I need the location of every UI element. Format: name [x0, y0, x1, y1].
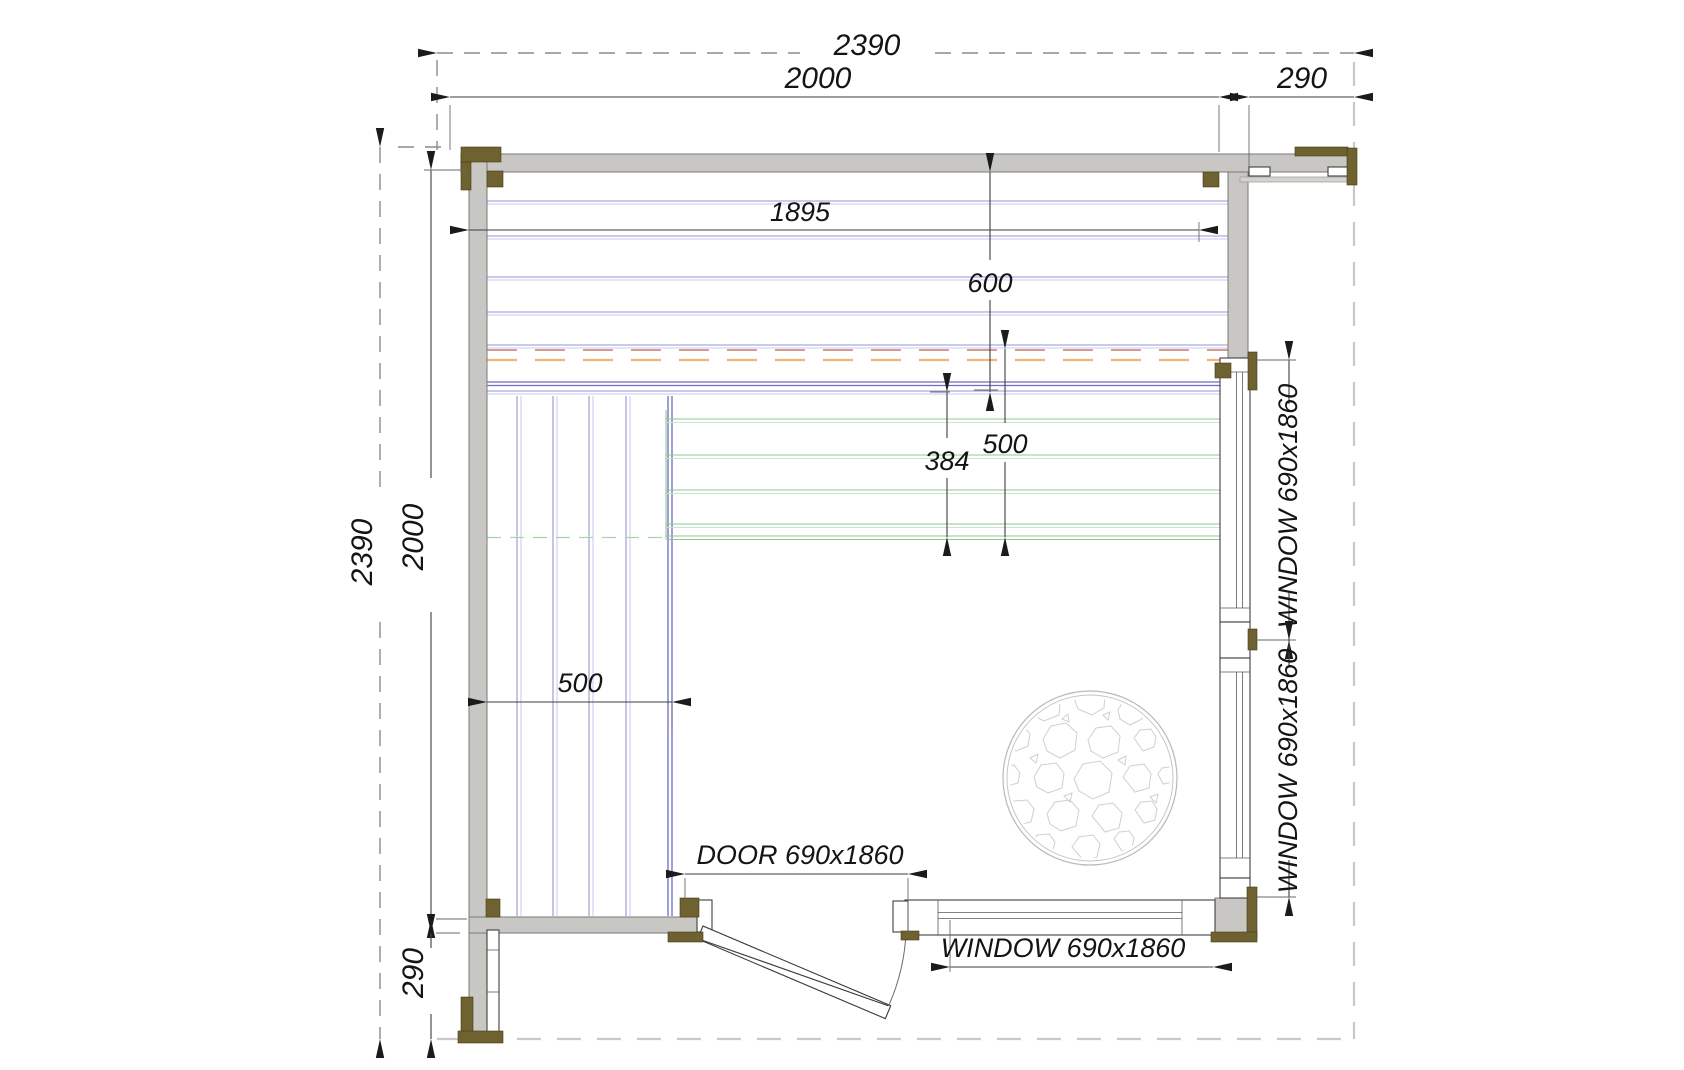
- window-bottom-label: WINDOW 690x1860: [941, 933, 1186, 963]
- door-swing-arc: [889, 933, 906, 1005]
- sauna-heater: [998, 684, 1177, 865]
- window-right-upper: [1220, 358, 1250, 622]
- door-leaf: [698, 926, 891, 1019]
- dim-label-side-bench: 500: [557, 668, 602, 698]
- dimension-porch-left: 290: [397, 933, 460, 1039]
- dimension-room-left: 2000: [397, 170, 467, 919]
- dimension-clearance: 500: [982, 349, 1027, 537]
- bottom-wall: [469, 917, 699, 933]
- door-label: DOOR 690x1860: [696, 840, 903, 870]
- dim-label-clearance: 500: [982, 429, 1027, 459]
- dimension-side-bench: 500: [487, 668, 672, 730]
- dim-label-bench-length: 1895: [770, 197, 831, 227]
- dim-label-porch-top: 290: [1276, 62, 1327, 95]
- dim-label-overall-top: 2390: [833, 29, 901, 62]
- dim-label-room-left: 2000: [397, 503, 430, 571]
- door: [697, 900, 908, 1019]
- dim-label-overall-left: 2390: [346, 518, 379, 586]
- porch-rail-top: [1240, 177, 1354, 182]
- dimension-gap: 384: [924, 392, 969, 537]
- dimension-window-right-lower: WINDOW 690x1860: [1257, 640, 1303, 897]
- porch-rail-post: [1249, 167, 1270, 176]
- floor-plan-page: 2390 2000 290 2390 2000 290 1895: [0, 0, 1684, 1070]
- window-right-lower-label: WINDOW 690x1860: [1273, 649, 1303, 894]
- dimension-room-top: 2000: [450, 62, 1219, 152]
- bottom-right-corner: [1215, 898, 1249, 935]
- dimension-window-right-upper: WINDOW 690x1860: [1257, 360, 1303, 640]
- door-jamb-right: [893, 901, 908, 932]
- window-right-lower: [1220, 658, 1250, 898]
- top-wall: [461, 154, 1348, 172]
- window-divider: [1220, 622, 1250, 658]
- dim-label-bench-depth: 600: [967, 268, 1012, 298]
- left-wall: [469, 154, 487, 1034]
- dim-label-room-top: 2000: [784, 62, 852, 95]
- lower-bench-slats: [487, 410, 1228, 540]
- side-bench-slats: [517, 396, 672, 916]
- dimension-door: DOOR 690x1860: [685, 840, 908, 932]
- sauna-floor-plan: 2390 2000 290 2390 2000 290 1895: [0, 0, 1684, 1070]
- window-right-upper-label: WINDOW 690x1860: [1273, 384, 1303, 629]
- porch-rail-left: [487, 930, 499, 1033]
- dim-label-porch-left: 290: [397, 948, 430, 999]
- dimension-overall-left: 2390: [346, 147, 380, 1039]
- footprint-boundary: [398, 60, 1356, 1039]
- dim-label-gap: 384: [924, 446, 969, 476]
- dimension-overall-top: 2390: [437, 29, 1354, 62]
- right-wall-upper: [1228, 172, 1248, 360]
- porch-rail-post: [1328, 167, 1350, 176]
- heater-clearance-lines: [487, 350, 1228, 360]
